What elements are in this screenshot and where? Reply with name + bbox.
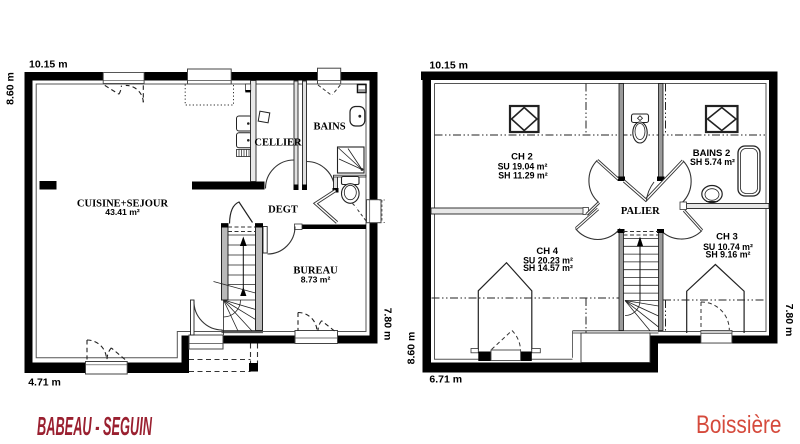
svg-text:SH 9.16 m²: SH 9.16 m² [706,250,751,260]
svg-text:PALIER: PALIER [621,206,660,217]
svg-text:7.80 m: 7.80 m [783,304,795,337]
svg-text:BAINS: BAINS [313,122,345,133]
svg-text:CELLIER: CELLIER [254,138,302,149]
svg-text:SH 11.29 m²: SH 11.29 m² [498,171,547,181]
svg-text:SH 5.74 m²: SH 5.74 m² [690,157,735,167]
svg-text:10.15 m: 10.15 m [29,59,68,71]
svg-text:BABEAU - SEGUIN: BABEAU - SEGUIN [37,411,153,441]
svg-text:DEGT: DEGT [268,204,298,215]
svg-text:43.41 m²: 43.41 m² [105,207,140,217]
svg-text:6.71 m: 6.71 m [429,374,462,386]
svg-text:8.60 m: 8.60 m [5,72,17,105]
svg-text:10.15 m: 10.15 m [429,60,468,72]
svg-text:4.71 m: 4.71 m [28,377,61,389]
svg-text:7.80 m: 7.80 m [382,308,394,341]
svg-text:8.73 m²: 8.73 m² [301,275,331,285]
svg-text:8.60 m: 8.60 m [406,332,418,365]
svg-text:CH 3: CH 3 [716,232,738,243]
svg-text:SH 14.57 m²: SH 14.57 m² [523,263,573,273]
svg-text:Boissière: Boissière [696,411,782,439]
